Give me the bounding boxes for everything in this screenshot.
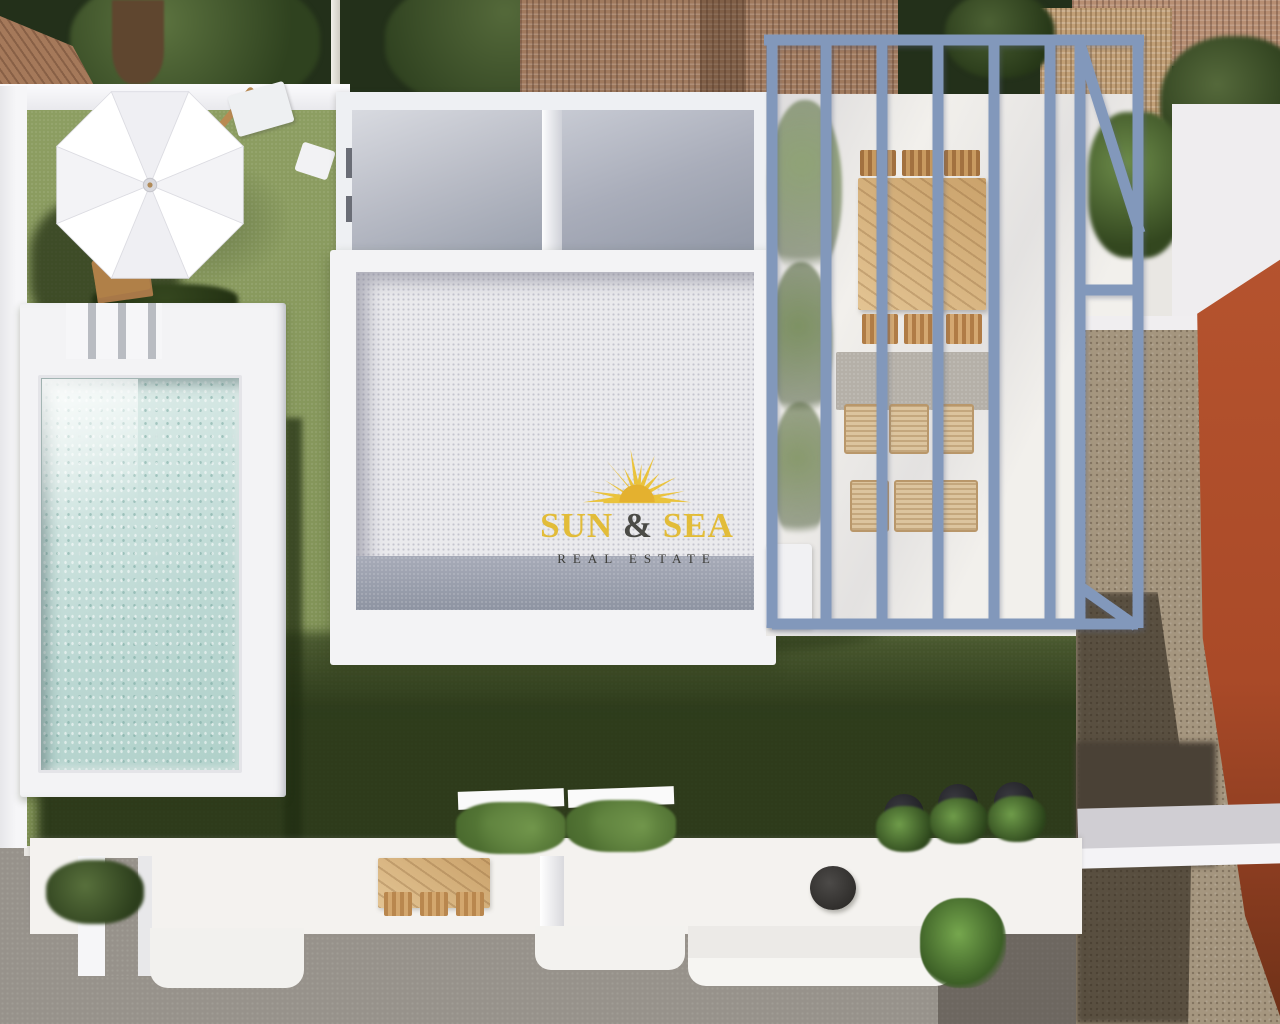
tree-trunk (112, 0, 164, 84)
potted-plant (930, 798, 988, 844)
aerial-villa-render: SUN & SEA REAL ESTATE (0, 0, 1280, 1024)
fern-plant (920, 898, 1006, 988)
bistro-chair (456, 892, 484, 916)
pool-reflection (42, 379, 138, 569)
patio-umbrella (47, 82, 253, 288)
pool-steps (66, 303, 162, 359)
planter-shrub (456, 802, 566, 854)
bush (46, 860, 144, 924)
brand-subtitle: REAL ESTATE (517, 551, 757, 567)
watermark: SUN & SEA REAL ESTATE (517, 448, 757, 588)
potted-plant (876, 806, 934, 852)
brand-word1: SUN (540, 506, 613, 545)
entrance-step (150, 928, 304, 988)
entrance-step (535, 926, 685, 970)
planter-shrub (566, 800, 676, 852)
door-opening (346, 196, 352, 222)
round-black-table (810, 866, 856, 910)
door-opening (346, 148, 352, 178)
brand-ampersand: & (623, 506, 653, 545)
terrace-step-band (688, 926, 954, 962)
brand-word2: SEA (663, 506, 734, 545)
brand-name: SUN & SEA (517, 508, 757, 545)
pergola-frame (762, 28, 1146, 636)
sun-logo-icon (581, 448, 693, 508)
bistro-chair (384, 892, 412, 916)
terrace-step-edge (688, 958, 954, 986)
roof-shadow-seam (700, 0, 746, 100)
bistro-chair (420, 892, 448, 916)
potted-plant (988, 796, 1046, 842)
